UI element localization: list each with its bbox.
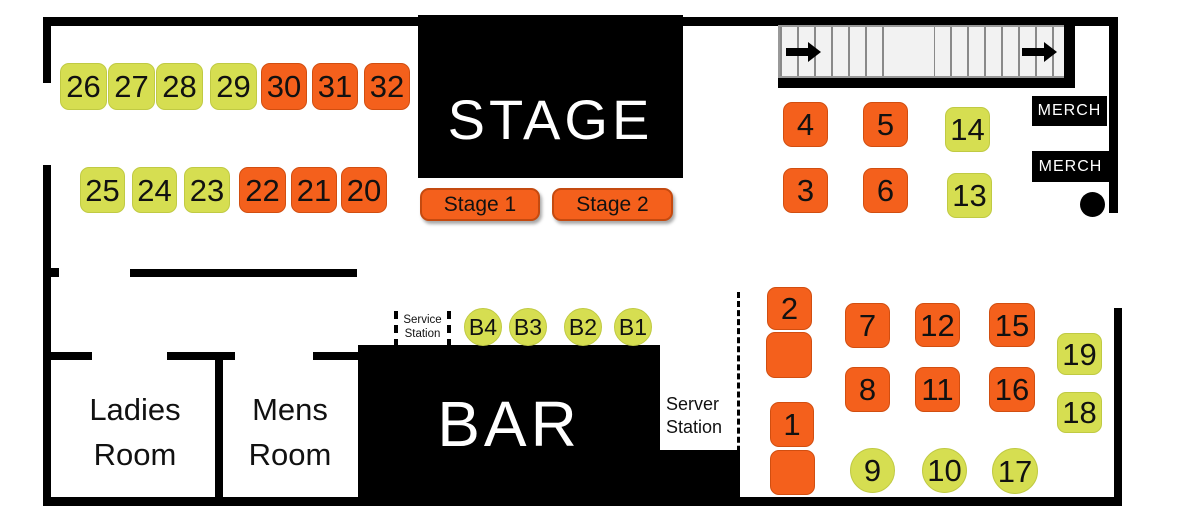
table-22[interactable]: 22: [239, 167, 286, 213]
stairs-direction-arrow-icon: [1022, 48, 1044, 56]
bar-extension: [660, 450, 740, 503]
wall-left-lower: [43, 165, 51, 505]
mens-room-label: Mens Room: [230, 388, 350, 478]
server-station-boundary: [737, 292, 740, 497]
table-20[interactable]: 20: [341, 167, 387, 213]
table-8[interactable]: 8: [845, 367, 890, 412]
wall-right-upper: [1109, 17, 1118, 213]
table-32[interactable]: 32: [364, 63, 410, 110]
wall-left-tick: [51, 268, 59, 277]
stage-2-button[interactable]: Stage 2: [552, 188, 673, 221]
table-21[interactable]: 21: [291, 167, 337, 213]
wall-stairs-bottom: [778, 78, 1075, 88]
table-15[interactable]: 15: [989, 303, 1035, 347]
table-28[interactable]: 28: [156, 63, 203, 110]
stairs-landing: [886, 27, 934, 76]
table-2[interactable]: 2: [767, 287, 812, 330]
wall-half-partition: [130, 269, 357, 277]
ladies-room-label: Ladies Room: [55, 388, 215, 478]
table-9[interactable]: 9: [850, 448, 895, 493]
table-7[interactable]: 7: [845, 303, 890, 348]
table-18[interactable]: 18: [1057, 392, 1102, 433]
table-24[interactable]: 24: [132, 167, 177, 213]
wall-restroom-top-3: [313, 352, 358, 360]
table-11[interactable]: 11: [915, 367, 960, 412]
wall-stairs-right: [1064, 25, 1075, 88]
bar-label: BAR: [437, 387, 581, 461]
stage-1-button[interactable]: Stage 1: [420, 188, 540, 221]
table-29[interactable]: 29: [210, 63, 257, 110]
bar-area: BAR: [358, 345, 660, 503]
stairs: [778, 25, 1068, 78]
wall-restroom-top-2: [167, 352, 235, 360]
table-b3[interactable]: B3: [509, 308, 547, 346]
merch-stand-1: MERCH: [1032, 96, 1107, 126]
table-26[interactable]: 26: [60, 63, 107, 110]
service-station-label: Service Station: [399, 313, 446, 342]
table-14[interactable]: 14: [945, 107, 990, 152]
wall-left-upper: [43, 17, 51, 83]
wall-restroom-divider: [215, 352, 223, 505]
table-3[interactable]: 3: [783, 168, 828, 213]
table-27[interactable]: 27: [108, 63, 155, 110]
table-1[interactable]: 1: [770, 402, 814, 447]
table-23[interactable]: 23: [184, 167, 230, 213]
table-b4[interactable]: B4: [464, 308, 502, 346]
table-31[interactable]: 31: [312, 63, 358, 110]
wall-right-lower: [1114, 308, 1122, 505]
venue-floor-plan: STAGE Stage 1 Stage 2 BAR MERCH MERCH La…: [0, 0, 1200, 525]
server-station-label: Server Station: [666, 393, 722, 438]
service-station-boundary-left: [394, 311, 398, 347]
table-10[interactable]: 10: [922, 448, 967, 493]
table-5[interactable]: 5: [863, 102, 908, 147]
table-6[interactable]: 6: [863, 168, 908, 213]
stairs-direction-arrow-icon: [786, 48, 808, 56]
table-16[interactable]: 16: [989, 367, 1035, 412]
post-marker-dot: [1080, 192, 1105, 217]
merch-stand-2: MERCH: [1032, 151, 1109, 182]
service-station-boundary-right: [447, 311, 451, 347]
table-unlabeled[interactable]: [770, 450, 815, 495]
table-19[interactable]: 19: [1057, 333, 1102, 375]
table-25[interactable]: 25: [80, 167, 125, 213]
table-4[interactable]: 4: [783, 102, 828, 147]
stage-label: STAGE: [448, 87, 654, 152]
table-17[interactable]: 17: [992, 448, 1038, 494]
table-b2[interactable]: B2: [564, 308, 602, 346]
table-30[interactable]: 30: [261, 63, 307, 110]
table-13[interactable]: 13: [947, 173, 992, 218]
wall-restroom-top-1: [48, 352, 92, 360]
stage-area: STAGE: [418, 15, 683, 178]
table-unlabeled[interactable]: [766, 332, 812, 378]
table-12[interactable]: 12: [915, 303, 960, 347]
table-b1[interactable]: B1: [614, 308, 652, 346]
